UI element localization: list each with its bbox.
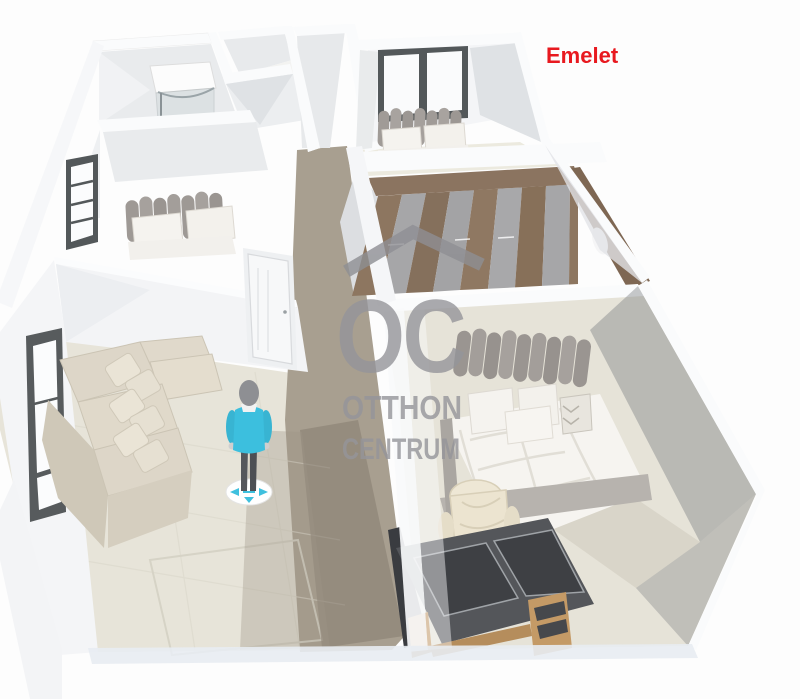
window-pane <box>427 51 462 113</box>
move-puck[interactable] <box>226 479 272 505</box>
watermark-monogram: OC <box>336 279 465 395</box>
avatar-leg <box>241 448 248 491</box>
avatar-head <box>239 380 259 406</box>
door-handle <box>283 310 287 314</box>
door-panel <box>248 254 292 364</box>
door-bedroom-left <box>243 248 297 370</box>
avatar-torso <box>233 406 265 454</box>
floorplan-canvas: OC OTTHON CENTRUM Emelet <box>0 0 800 699</box>
window-pane <box>384 54 419 116</box>
avatar-leg <box>250 448 257 491</box>
corner-shower <box>150 62 216 120</box>
floorplan-3d: OC OTTHON CENTRUM Emelet <box>0 0 800 699</box>
pillow-patterned <box>560 394 592 434</box>
watermark-line1: OTTHON <box>342 389 462 426</box>
pillow-small <box>505 406 553 444</box>
watermark-line2: CENTRUM <box>342 433 460 466</box>
floor-label: Emelet <box>546 43 619 68</box>
window-bedroom-left <box>66 154 98 250</box>
